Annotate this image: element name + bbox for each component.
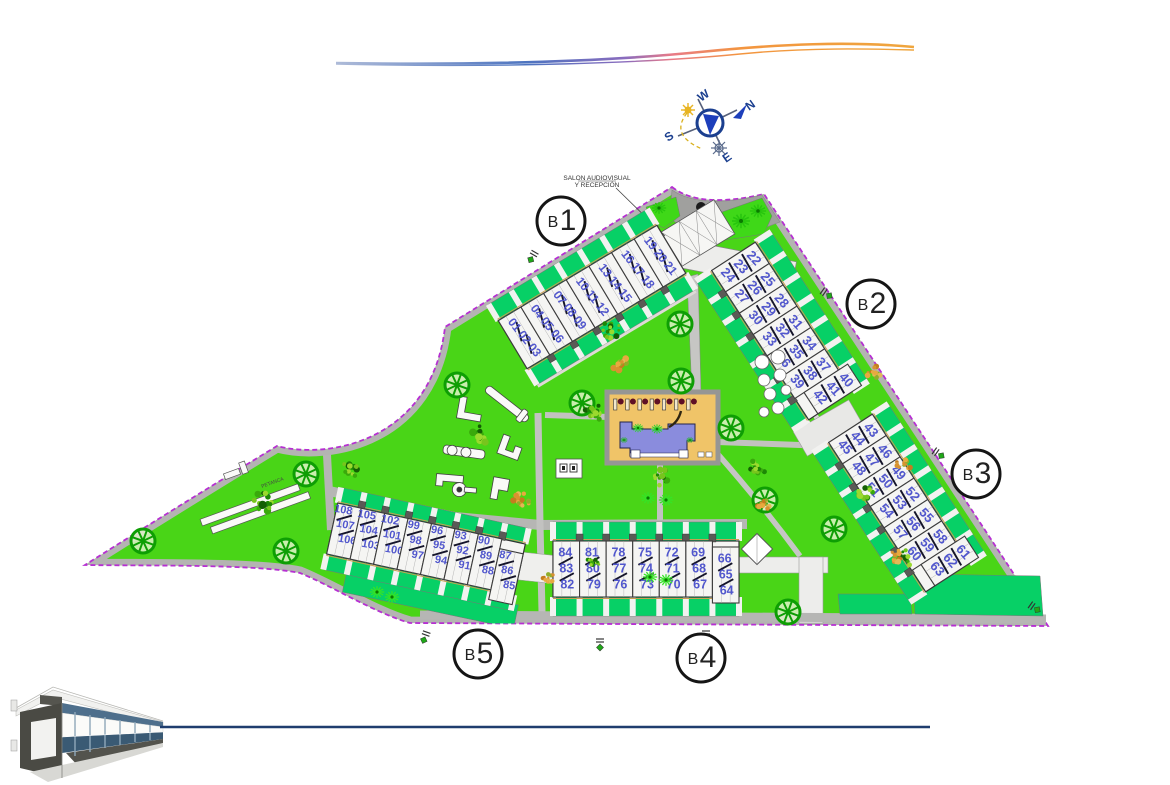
svg-text:81: 81 [585,545,599,559]
svg-text:98: 98 [408,534,422,548]
svg-text:83: 83 [559,561,573,575]
svg-text:5: 5 [477,637,494,670]
svg-text:91: 91 [457,559,471,573]
svg-text:Y RECEPCIÓN: Y RECEPCIÓN [575,180,620,189]
svg-text:85: 85 [502,579,516,593]
svg-text:74: 74 [639,561,653,575]
svg-text:90: 90 [477,534,491,548]
svg-text:92: 92 [455,544,469,558]
svg-text:72: 72 [665,545,679,559]
svg-text:77: 77 [612,561,626,575]
svg-text:88: 88 [481,564,495,578]
svg-text:97: 97 [410,548,424,562]
svg-text:B: B [963,467,974,484]
svg-text:B: B [465,647,476,664]
svg-text:87: 87 [498,549,512,563]
svg-text:2: 2 [870,287,887,320]
svg-text:4: 4 [700,641,717,674]
svg-text:67: 67 [693,577,707,591]
svg-text:79: 79 [587,577,601,591]
svg-text:1: 1 [560,204,577,237]
svg-text:75: 75 [638,545,652,559]
svg-text:96: 96 [430,524,444,538]
svg-text:76: 76 [613,577,627,591]
svg-text:71: 71 [666,561,680,575]
svg-text:3: 3 [975,457,992,490]
svg-text:84: 84 [558,545,572,559]
svg-text:82: 82 [560,577,574,591]
svg-text:95: 95 [432,539,446,553]
svg-text:B: B [548,214,559,231]
svg-text:64: 64 [720,583,734,597]
svg-text:B: B [688,651,699,668]
svg-text:69: 69 [691,545,705,559]
svg-text:66: 66 [718,551,732,565]
svg-text:65: 65 [719,567,733,581]
svg-text:78: 78 [611,545,625,559]
svg-text:89: 89 [479,549,493,563]
svg-text:99: 99 [407,519,421,533]
svg-text:93: 93 [453,529,467,543]
svg-text:68: 68 [692,561,706,575]
svg-text:86: 86 [500,564,514,578]
svg-text:B: B [858,297,869,314]
